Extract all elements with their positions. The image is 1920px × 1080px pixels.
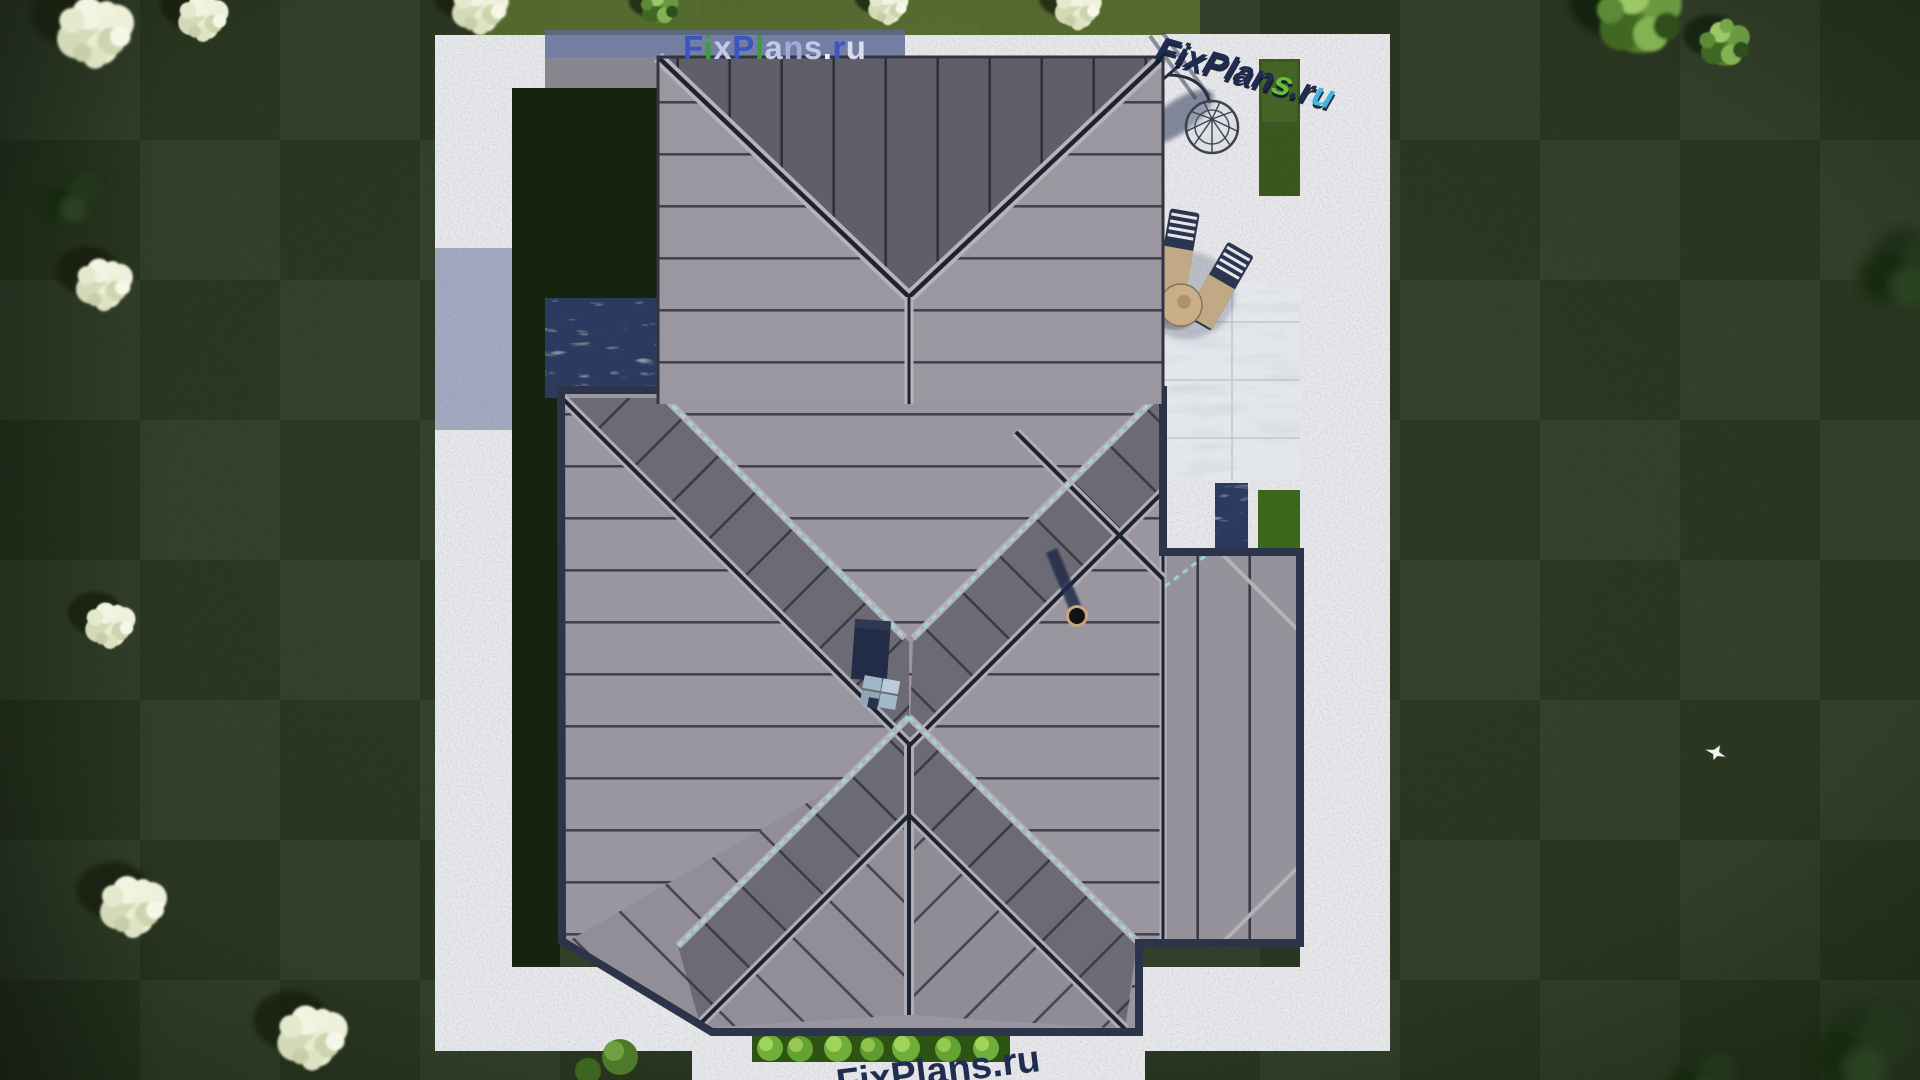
hedge-block xyxy=(1258,490,1300,549)
corner-bush-highlight xyxy=(604,1041,624,1061)
watermark-main: FixPlans.ru xyxy=(683,29,866,66)
navy-stone-pad-right xyxy=(1215,483,1248,549)
left-path-shadow xyxy=(435,248,512,430)
vent-pipe xyxy=(1068,607,1087,626)
navy-stone-pad-left xyxy=(545,298,662,398)
render-canvas: FixPlans.ru FixPlans.ru FixPlans.ru FixP… xyxy=(0,0,1920,1080)
chimney xyxy=(851,619,891,681)
aerial-render: FixPlans.ru FixPlans.ru FixPlans.ru FixP… xyxy=(0,0,1920,1080)
left-path xyxy=(435,35,512,1051)
right-wing-roof xyxy=(1163,552,1300,943)
wall-top-strip xyxy=(545,57,658,88)
upper-roof xyxy=(658,57,1163,404)
right-path xyxy=(1300,404,1390,967)
